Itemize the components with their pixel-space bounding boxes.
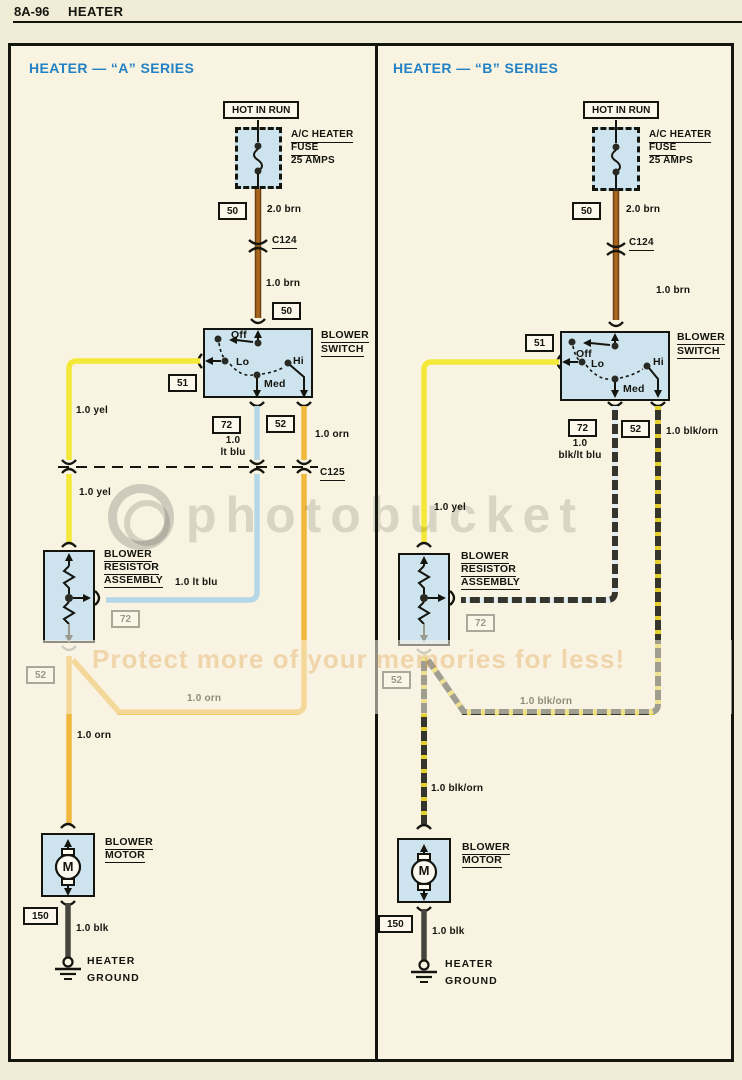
a-switch-pos-lo: Lo: [236, 356, 249, 368]
a-resistor-element-lower: [64, 602, 74, 624]
b-resistor-entry-arrow: [420, 556, 428, 564]
a-motor-symbol: M: [61, 860, 75, 875]
a-wire-label-ltblu-line2: lt blu: [210, 447, 256, 459]
b-motor-inlet-connector-icon: [417, 825, 431, 829]
a-ground-label-2: GROUND: [87, 972, 140, 984]
a-circuit-box-150: 150: [23, 907, 58, 925]
a-resistor-label-1: BLOWER: [104, 548, 152, 562]
b-switch-label-2: SWITCH: [677, 345, 720, 359]
a-resistor-label-3: ASSEMBLY: [104, 574, 163, 588]
a-wire-label-yel-1: 1.0 yel: [76, 405, 108, 417]
a-switch-off-dot: [215, 336, 222, 343]
a-resistor-entry-arrow: [65, 553, 73, 561]
a-switch-lo-arrow: [205, 357, 213, 365]
watermark-brand: photobucket: [186, 486, 585, 544]
b-circuit-box-72: 72: [568, 419, 597, 437]
b-fuse-label-1: A/C HEATER: [649, 129, 711, 143]
b-wire-label-blkorn-3: 1.0 blk/orn: [431, 783, 483, 795]
a-switch-pos-med: Med: [264, 378, 286, 390]
a-motor-inlet-connector-icon: [61, 824, 75, 828]
b-fuse-terminal-top: [613, 144, 620, 151]
a-resistor-tap-dot: [65, 594, 73, 602]
a-circuit-box-50b: 50: [272, 302, 301, 320]
b-motor-brush-bottom: [418, 884, 430, 890]
b-wire-label-blkorn-2: 1.0 blk/orn: [520, 696, 572, 708]
a-switch-hi-out: [290, 365, 304, 391]
a-motor-label-1: BLOWER: [105, 836, 153, 850]
b-motor-label-1: BLOWER: [462, 841, 510, 855]
b-switch-hi-arrow: [654, 390, 662, 398]
b-circuit-box-72-faded: 72: [466, 614, 495, 632]
b-circuit-box-150: 150: [378, 915, 413, 933]
b-resistor-tap-connector-icon: [450, 591, 454, 605]
a-orange-wire: [69, 406, 304, 824]
a-fuse-rating: 25 AMPS: [291, 155, 335, 167]
b-switch-med-arrow: [611, 390, 619, 398]
a-motor-entry-arrow: [64, 839, 72, 847]
a-fuse-label-1: A/C HEATER: [291, 129, 353, 143]
b-fuse-terminal-bottom: [613, 169, 620, 176]
a-wire-label-1-0-brn: 1.0 brn: [266, 278, 300, 290]
a-circuit-box-72-faded: 72: [111, 610, 140, 628]
b-ground-label-1: HEATER: [445, 958, 493, 970]
b-switch-label-1: BLOWER: [677, 331, 725, 345]
a-fuse-terminal-bottom: [255, 168, 262, 175]
b-ground-eyelet: [420, 961, 429, 970]
b-fuse-label-2: FUSE: [649, 142, 676, 156]
b-switch-feed-dot: [612, 343, 619, 350]
b-ground-label-2: GROUND: [445, 975, 498, 987]
a-wire-label-ltblu-full: 1.0 lt blu: [175, 577, 218, 589]
b-wire-label-yel: 1.0 yel: [434, 502, 466, 514]
b-switch-pos-lo: Lo: [591, 358, 604, 370]
a-circuit-box-51: 51: [168, 374, 197, 392]
a-wire-label-yel-2: 1.0 yel: [79, 487, 111, 499]
a-wire-label-orn-3: 1.0 orn: [77, 730, 111, 742]
b-circuit-box-52-faded: 52: [382, 671, 411, 689]
b-motor-symbol: M: [417, 864, 431, 879]
a-fuse-label-2: FUSE: [291, 142, 318, 156]
a-resistor-label-2: RESISTOR: [104, 561, 159, 575]
a-resistor-inlet-connector-icon: [62, 543, 76, 547]
a-circuit-box-52-faded: 52: [26, 666, 55, 684]
b-switch-hi-out: [649, 368, 658, 391]
a-ground-label-1: HEATER: [87, 955, 135, 967]
b-connector-label-c124: C124: [629, 237, 654, 251]
a-circuit-box-50: 50: [218, 202, 247, 220]
a-resistor-tap-connector-icon: [95, 591, 99, 605]
b-switch-pos-off: Off: [576, 348, 592, 360]
a-switch-label-2: SWITCH: [321, 343, 364, 357]
b-wire-label-blkorn-1: 1.0 blk/orn: [666, 426, 718, 438]
b-resistor-tap-arrow: [438, 594, 446, 602]
b-circuit-box-51: 51: [525, 334, 554, 352]
a-motor-label-2: MOTOR: [105, 849, 145, 863]
a-wire-label-orn-1: 1.0 orn: [315, 429, 349, 441]
b-resistor-label-3: ASSEMBLY: [461, 576, 520, 590]
b-switch-pos-med: Med: [623, 383, 645, 395]
a-resistor-element-upper: [64, 566, 74, 594]
a-connector-label-c125: C125: [320, 467, 345, 481]
a-switch-label-1: BLOWER: [321, 329, 369, 343]
b-series-wiring: [411, 120, 665, 982]
b-switch-pos-hi: Hi: [653, 356, 664, 368]
b-wire-label-2-0-brn: 2.0 brn: [626, 204, 660, 216]
watermark-slogan: Protect more of your memories for less!: [92, 644, 625, 675]
b-motor-exit-arrow: [420, 893, 428, 901]
b-wire-label-blk: 1.0 blk: [432, 926, 465, 938]
a-switch-lo-dot: [222, 358, 229, 365]
a-switch-feed-dot: [255, 340, 262, 347]
a-fuse-terminal-top: [255, 143, 262, 150]
b-resistor-element-upper: [419, 566, 429, 594]
watermark-camera-lens-icon: [108, 484, 174, 550]
a-motor-exit-arrow: [64, 888, 72, 896]
a-switch-hi-arrow: [300, 390, 308, 398]
b-motor-label-2: MOTOR: [462, 854, 502, 868]
b-resistor-element-lower: [419, 602, 429, 624]
b-resistor-label-2: RESISTOR: [461, 563, 516, 577]
a-switch-pos-off: Off: [231, 329, 247, 341]
b-blk-orn-wire-base: [424, 406, 658, 824]
b-switch-entry-arrow: [611, 333, 619, 341]
b-wire-label-blkltblu-line2: blk/lt blu: [552, 450, 608, 462]
a-wire-label-blk: 1.0 blk: [76, 923, 109, 935]
a-wire-label-orn-2: 1.0 orn: [187, 693, 221, 705]
a-circuit-box-52: 52: [266, 415, 295, 433]
b-hot-in-run-box: HOT IN RUN: [583, 101, 659, 119]
a-circuit-box-72: 72: [212, 416, 241, 434]
manual-page: 8A-96 HEATER HEATER — “A” SERIES HEATER …: [0, 0, 742, 1080]
a-switch-pos-hi: Hi: [293, 355, 304, 367]
b-motor-entry-arrow: [420, 844, 428, 852]
a-switch-wiper-path: [219, 343, 284, 375]
a-switch-entry-arrow: [254, 330, 262, 338]
b-wire-label-blkltblu-2line: 1.0 blk/lt blu: [552, 438, 608, 461]
b-switch-off-arrow: [583, 339, 591, 347]
b-switch-off-arm: [590, 343, 610, 345]
a-motor-brush-bottom: [62, 879, 74, 885]
a-resistor-tap-arrow: [83, 594, 91, 602]
a-series-wiring: [55, 120, 318, 979]
a-switch-med-dot: [254, 372, 261, 379]
a-switch-med-arrow: [253, 390, 261, 398]
b-switch-lo-arrow: [562, 358, 570, 366]
b-circuit-box-50: 50: [572, 202, 601, 220]
a-switch-inlet-connector-icon: [251, 319, 265, 323]
b-series-title: HEATER — “B” SERIES: [393, 60, 558, 76]
a-connector-label-c124: C124: [272, 235, 297, 249]
b-wire-label-blkltblu-line1: 1.0: [552, 438, 608, 450]
b-resistor-tap-dot: [420, 594, 428, 602]
b-switch-inlet-connector-icon: [609, 322, 623, 326]
a-hot-in-run-box: HOT IN RUN: [223, 101, 299, 119]
a-wire-label-ltblu-line1: 1.0: [210, 435, 256, 447]
b-blk-orn-wire-stripes: [424, 406, 658, 824]
b-resistor-label-1: BLOWER: [461, 550, 509, 564]
b-switch-med-dot: [612, 376, 619, 383]
a-wire-label-2-0-brn: 2.0 brn: [267, 204, 301, 216]
a-ground-eyelet: [64, 958, 73, 967]
a-series-title: HEATER — “A” SERIES: [29, 60, 194, 76]
b-fuse-rating: 25 AMPS: [649, 155, 693, 167]
a-wire-label-ltblu-2line: 1.0 lt blu: [210, 435, 256, 458]
b-wire-label-1-0-brn: 1.0 brn: [656, 285, 690, 297]
b-switch-off-dot: [569, 339, 576, 346]
b-circuit-box-52: 52: [621, 420, 650, 438]
